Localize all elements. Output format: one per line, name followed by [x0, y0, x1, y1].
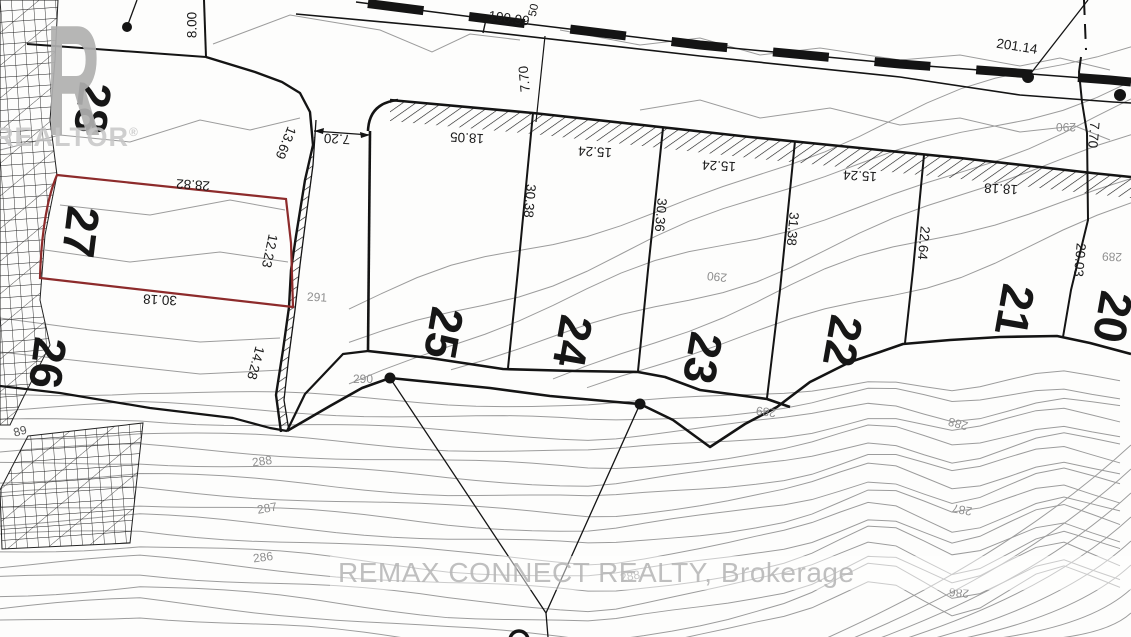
dimension-label: 15.24 [701, 157, 736, 174]
contour-line [0, 433, 1120, 486]
dimension-label: 30.38 [521, 183, 539, 218]
dimension-label: 20.03 [1071, 242, 1089, 277]
contour-elevation-label: 288 [251, 453, 273, 470]
contour-elevation-label: 290 [1056, 120, 1076, 134]
survey-point-dot [1022, 71, 1034, 83]
contour-elevation-label: 290 [353, 372, 373, 386]
contour-elevation-label: 290 [706, 269, 728, 285]
contour-elevation-label: 89 [12, 423, 29, 440]
dimension-label: 28.82 [176, 176, 211, 193]
lot-number-label: 24 [543, 311, 603, 371]
dimension-label: 201.14 [995, 36, 1039, 57]
dimension-label: 7.70 [1085, 121, 1102, 148]
contour-elevation-label: 287 [951, 501, 973, 518]
brokerage-watermark: REMAX CONNECT REALTY, Brokerage [330, 556, 1131, 590]
contour-elevation-label: 289 [1101, 249, 1122, 264]
survey-monument-circle [510, 631, 528, 637]
dimension-label: 14.28 [244, 345, 267, 382]
leader-line [546, 613, 548, 637]
dimension-label: 15.24 [842, 167, 877, 184]
dimension-line [536, 36, 545, 122]
survey-point-dot [635, 399, 646, 410]
dimension-label: 8.00 [185, 12, 200, 38]
contour-elevation-label: 291 [307, 290, 328, 305]
lot-number-label: 28 [64, 79, 122, 136]
lot-divider [767, 141, 795, 398]
dimension-label: 22.64 [915, 225, 933, 260]
dimension-label: 50 [527, 3, 541, 18]
lot-number-label: 20 [1083, 287, 1131, 346]
survey-point-dot [122, 22, 132, 32]
brokerage-watermark-text: REMAX CONNECT REALTY, Brokerage [330, 557, 855, 589]
dimension-label: 31.38 [784, 211, 802, 246]
lot-boundary [204, 0, 206, 57]
dimension-label: 18.05 [450, 129, 485, 146]
lot-number-label: 21 [985, 280, 1045, 339]
dimension-label: 18.18 [984, 180, 1019, 197]
contour-line [0, 468, 1120, 531]
lot-number-label: 26 [19, 334, 77, 391]
contour-elevation-label: 289 [755, 403, 777, 420]
dimension-label: 15.24 [577, 143, 612, 160]
hatch-strip [390, 100, 1131, 198]
dimension-label: 190.99 [487, 8, 530, 29]
road-edge-line [296, 14, 1131, 103]
contour-elevation-label: 286 [252, 549, 274, 566]
lot-divider [508, 113, 533, 368]
contour-line [0, 425, 1120, 468]
contour-elevation-label: 287 [256, 500, 278, 517]
dimension-label: 12.23 [259, 233, 281, 269]
lot-number-label: 27 [52, 203, 110, 260]
lot-boundary [368, 131, 370, 351]
dimension-label: 7.20 [323, 131, 350, 147]
lot-divider [638, 128, 663, 371]
hatch-strip [276, 120, 316, 432]
dashed-limit-line [1084, 0, 1086, 50]
lot-number-label: 22 [813, 311, 873, 370]
dimension-label: 30.18 [143, 291, 178, 308]
lot-number-label: 25 [414, 303, 474, 362]
survey-plot-map: 2827262524232221208.00190.9950201.147.70… [0, 0, 1131, 637]
dimension-label: 30.36 [652, 197, 670, 232]
lot-boundaries [0, 0, 1131, 447]
lot-number-label: 23 [673, 328, 733, 387]
plot-plan-canvas: 2827262524232221208.00190.9950201.147.70… [0, 0, 1131, 637]
dimension-label: 7.70 [516, 65, 533, 92]
dimension-label: 13.69 [273, 124, 300, 161]
survey-point-dot [1114, 89, 1126, 101]
survey-point-dot [385, 373, 396, 384]
